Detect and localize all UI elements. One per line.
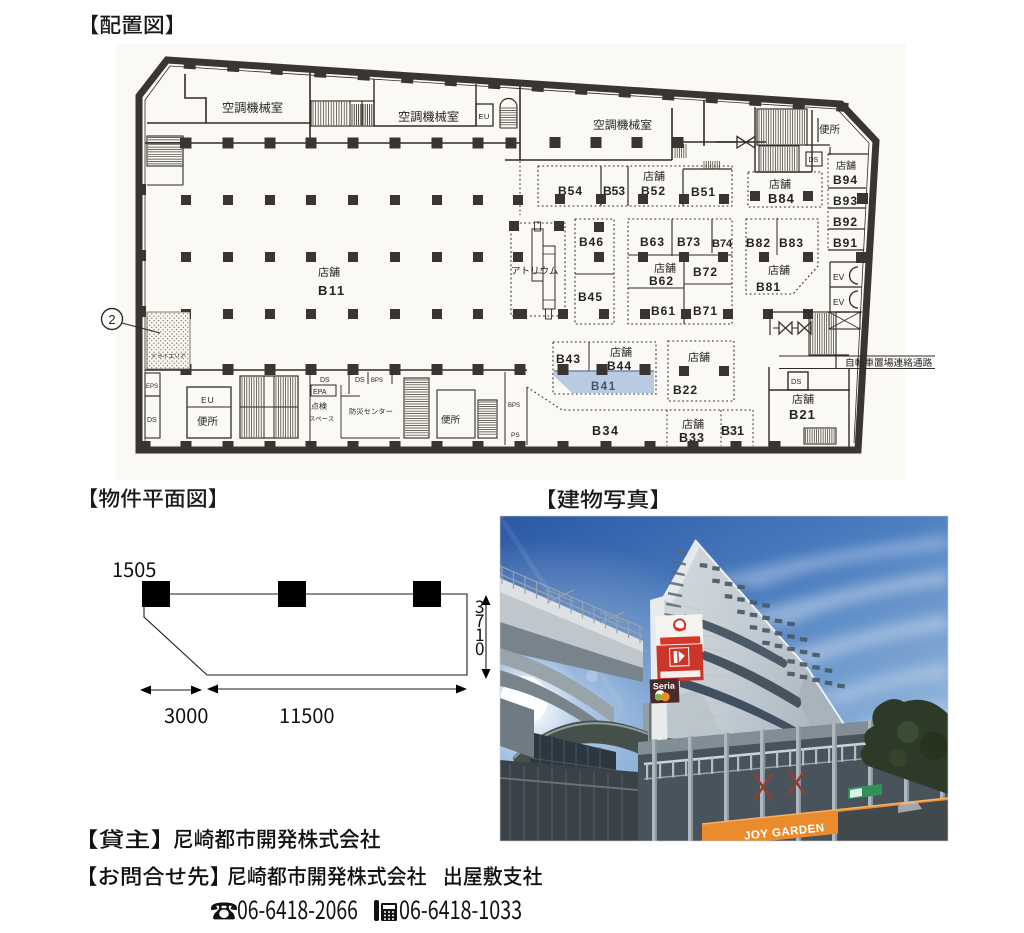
svg-text:DS: DS: [355, 377, 365, 384]
svg-text:B74: B74: [712, 238, 733, 250]
svg-text:2: 2: [108, 312, 115, 327]
svg-text:EPA: EPA: [313, 389, 327, 396]
svg-text:B22: B22: [673, 383, 698, 397]
svg-text:B51: B51: [691, 185, 716, 199]
svg-text:B73: B73: [677, 235, 701, 249]
svg-text:DS: DS: [809, 157, 819, 164]
svg-text:B62: B62: [649, 274, 674, 288]
svg-text:B81: B81: [756, 280, 781, 294]
svg-text:B92: B92: [833, 215, 858, 229]
svg-text:B31: B31: [721, 424, 744, 438]
svg-text:B94: B94: [833, 173, 858, 187]
svg-text:B43: B43: [556, 352, 581, 366]
svg-text:EPS: EPS: [146, 384, 158, 390]
svg-text:DS: DS: [320, 377, 330, 384]
svg-text:EV: EV: [833, 272, 845, 282]
svg-text:EV: EV: [833, 297, 845, 307]
svg-text:B41: B41: [591, 381, 617, 393]
svg-text:B63: B63: [640, 235, 665, 249]
svg-text:BPS: BPS: [508, 403, 520, 409]
svg-text:B34: B34: [592, 424, 619, 438]
svg-text:B45: B45: [578, 290, 603, 304]
svg-text:B71: B71: [693, 304, 718, 318]
svg-text:DS: DS: [147, 417, 157, 424]
svg-text:B53: B53: [603, 184, 625, 198]
svg-text:Seria: Seria: [653, 681, 676, 692]
svg-text:B46: B46: [579, 235, 604, 249]
svg-text:B91: B91: [833, 236, 858, 250]
svg-text:BPS: BPS: [371, 378, 383, 384]
svg-text:PS: PS: [511, 432, 520, 439]
svg-text:B93: B93: [833, 194, 858, 208]
svg-text:DS: DS: [791, 377, 801, 386]
svg-text:EU: EU: [201, 395, 215, 405]
svg-text:B82: B82: [746, 236, 771, 250]
svg-text:B83: B83: [779, 236, 804, 250]
svg-text:B21: B21: [789, 407, 816, 422]
svg-text:B84: B84: [768, 191, 795, 206]
svg-text:B72: B72: [693, 265, 718, 279]
svg-text:B11: B11: [318, 283, 346, 298]
svg-text:EU: EU: [479, 112, 490, 121]
svg-text:B61: B61: [651, 304, 676, 318]
